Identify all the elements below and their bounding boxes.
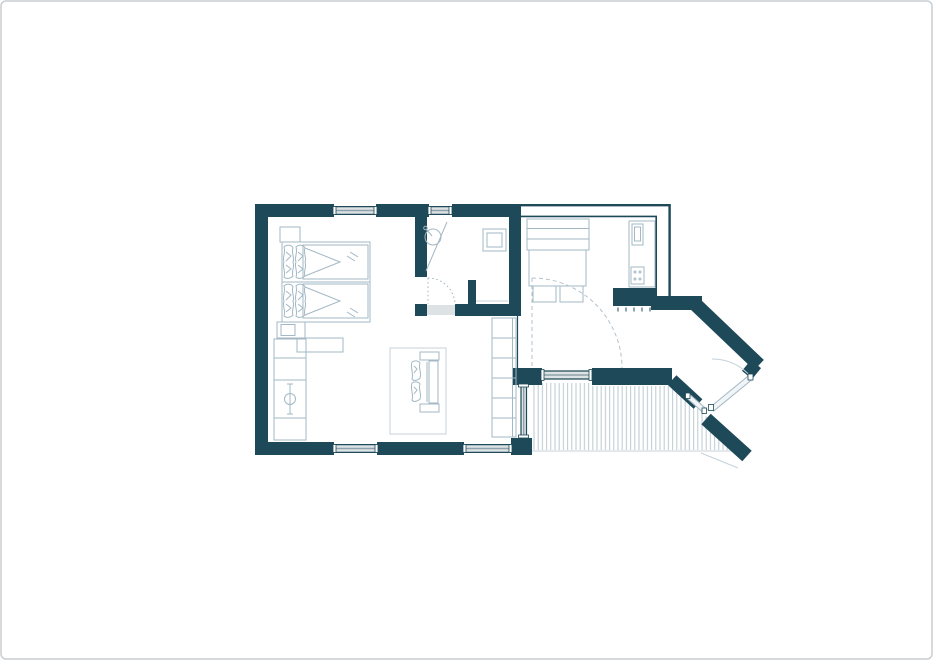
wall-bottom-pier [377, 442, 464, 455]
nightstand-top [280, 227, 300, 242]
bed2-mattress [529, 250, 586, 286]
wall-top-pier [376, 204, 429, 217]
bookshelf [492, 318, 516, 437]
hall-sliding-door [532, 278, 622, 368]
double-bed [282, 242, 370, 322]
window-top-2 [428, 206, 452, 215]
bed2-stool-left [533, 286, 556, 302]
sofa-cushion [411, 361, 420, 380]
wall-post-bottom [511, 438, 532, 455]
entry [686, 359, 754, 414]
entry-door-latch [748, 374, 753, 380]
window-bottom-1 [333, 444, 378, 453]
wall-kitchen-block [613, 288, 657, 306]
kitchen-vent-ticks [618, 308, 650, 312]
wall-deck-top [592, 368, 672, 385]
sofa-armrest-bottom [420, 404, 439, 412]
duvet-bottom [303, 284, 368, 318]
door-threshold [427, 305, 455, 315]
sofa-armrest-top [420, 352, 439, 360]
pillows [283, 245, 305, 317]
sofa-back [429, 361, 438, 403]
wardrobe [274, 339, 306, 440]
page-frame [1, 1, 932, 659]
sofa [411, 352, 439, 412]
wall-bath-niche [468, 280, 476, 305]
wall-post-hall [513, 368, 542, 385]
duvet-fold-bottom [305, 287, 340, 315]
floor-plan-page [0, 0, 933, 660]
toilet [483, 229, 506, 251]
bed2-stool-right [560, 286, 583, 302]
sidelight-cap-top [686, 393, 691, 399]
door-swing-arc [428, 278, 455, 305]
window-hall-south [541, 370, 592, 381]
duvet-fold-top [305, 248, 340, 276]
entry-door-leaf [710, 375, 752, 411]
sidelight-cap-bottom [702, 408, 707, 414]
living-furniture [390, 318, 516, 437]
sliding-door-arc [532, 278, 622, 368]
bench [297, 338, 343, 352]
nightstand-bottom [277, 322, 305, 338]
window-top-1 [333, 206, 377, 215]
bed2-headboard [527, 219, 589, 250]
bed-2 [527, 219, 589, 302]
cooktop [631, 267, 644, 284]
entry-door-hinge [709, 405, 714, 411]
wall-bath-right [509, 204, 521, 316]
bathroom-fixtures [424, 222, 508, 315]
bedroom-furniture [274, 227, 370, 440]
sofa-cushion [411, 382, 420, 401]
wall-bottom-left [255, 442, 334, 455]
window-deck-east [519, 384, 529, 438]
wall-diagonal-ne [694, 303, 759, 365]
bathroom-door [427, 278, 455, 315]
duvet-top [303, 245, 368, 279]
kitchen-counter [629, 221, 655, 287]
wall-left [255, 204, 268, 455]
window-bottom-2 [463, 444, 512, 453]
floor-plan-drawing [0, 0, 933, 660]
entry-step-edge [701, 453, 738, 468]
wall-bath-corner [415, 304, 427, 316]
